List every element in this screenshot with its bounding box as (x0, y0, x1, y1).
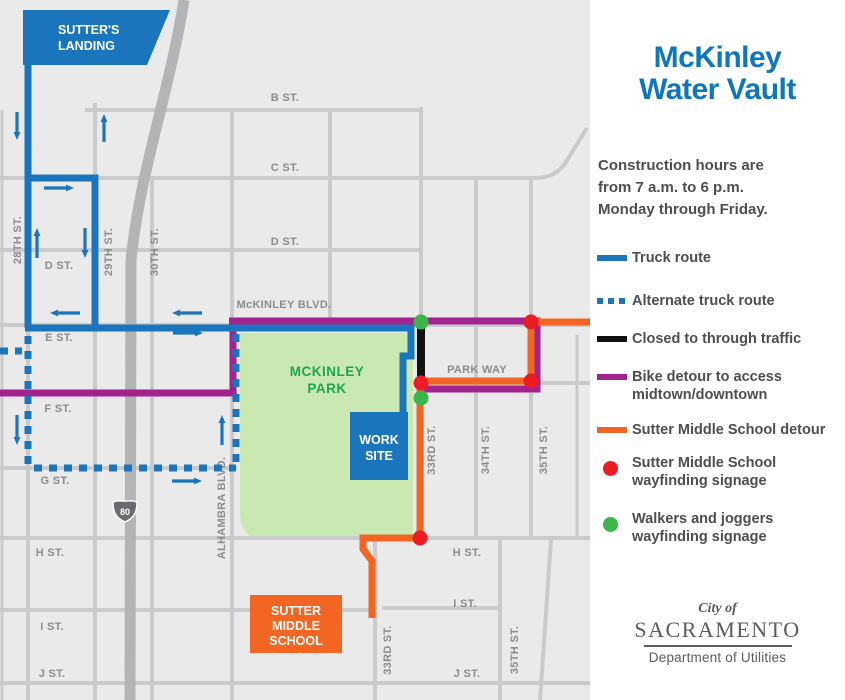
hours-line3: Monday through Friday. (598, 199, 768, 221)
legend-label: wayfinding signage (632, 528, 773, 546)
hours-line2: from 7 a.m. to 6 p.m. (598, 177, 768, 199)
school-detour-swatch (597, 427, 627, 433)
street-label: J ST. (454, 668, 481, 680)
info-panel: McKinley Water Vault Construction hours … (590, 0, 845, 700)
sutters-landing-callout: SUTTER'S LANDING (23, 10, 170, 65)
school-signage-dot (524, 374, 539, 389)
street-label: E ST. (45, 332, 73, 344)
legend-label: Sutter Middle School (632, 454, 776, 472)
logo-department: Department of Utilities (590, 650, 845, 665)
school-signage-dot (524, 315, 539, 330)
logo-divider (644, 645, 792, 647)
legend-label: Walkers and joggers (632, 510, 773, 528)
legend-label: Truck route (632, 249, 711, 267)
street-label: 35TH ST. (509, 626, 521, 674)
school-signage-dot (413, 531, 428, 546)
walkers-signage-dot (414, 391, 429, 406)
park-label-line2: PARK (307, 381, 346, 396)
street-label: I ST. (453, 598, 477, 610)
street-label: J ST. (39, 668, 66, 680)
street-label: 28TH ST. (12, 216, 24, 264)
street-label: 35TH ST. (538, 426, 550, 474)
closed-traffic-swatch (597, 336, 627, 342)
street-label: 33RD ST. (382, 625, 394, 674)
street-label: PARK WAY (447, 364, 507, 376)
street-label: C ST. (271, 162, 299, 174)
red-dot-icon (603, 461, 618, 476)
sacramento-logo: City of SACRAMENTO Department of Utiliti… (590, 601, 845, 665)
legend-label: Bike detour to access (632, 368, 782, 386)
shield-number: 80 (120, 507, 130, 517)
construction-map: 80 B ST. C ST. D ST. D ST. McKINLEY BLVD… (0, 0, 590, 700)
logo-sacramento: SACRAMENTO (590, 617, 845, 643)
construction-hours-note: Construction hours are from 7 a.m. to 6 … (598, 155, 768, 221)
work-site-callout: WORK SITE (350, 412, 408, 480)
page-title: McKinley Water Vault (590, 42, 845, 106)
legend-label: Alternate truck route (632, 292, 775, 310)
street-label: F ST. (44, 403, 71, 415)
alternate-truck-route-swatch (597, 298, 627, 304)
park-label-line1: MCKINLEY (290, 364, 365, 379)
sutters-landing-line2: LANDING (58, 39, 115, 53)
street-label: H ST. (453, 547, 481, 559)
street-label: ALHAMBRA BLVD. (216, 457, 228, 560)
street-label: McKINLEY BLVD. (237, 299, 332, 311)
school-signage-dot (414, 376, 429, 391)
sutter-middle-school-callout: SUTTER MIDDLE SCHOOL (250, 595, 342, 653)
flyer: 80 B ST. C ST. D ST. D ST. McKINLEY BLVD… (0, 0, 845, 700)
legend-label: midtown/downtown (632, 386, 782, 404)
street-label: D ST. (271, 236, 299, 248)
street-label: 33RD ST. (426, 425, 438, 474)
school-line2: MIDDLE (272, 619, 320, 633)
street-label: 29TH ST. (103, 228, 115, 276)
green-dot-icon (603, 517, 618, 532)
street-label: 34TH ST. (480, 426, 492, 474)
street-label: D ST. (45, 260, 73, 272)
street-label: B ST. (271, 92, 299, 104)
legend-label: wayfinding signage (632, 472, 776, 490)
title-line2: Water Vault (590, 74, 845, 106)
bike-detour-swatch (597, 374, 627, 380)
title-line1: McKinley (590, 42, 845, 74)
street-label: H ST. (36, 547, 64, 559)
street-label: 30TH ST. (149, 228, 161, 276)
legend-label: Sutter Middle School detour (632, 421, 825, 439)
work-site-line1: WORK (359, 433, 399, 447)
school-line3: SCHOOL (269, 634, 323, 648)
hours-line1: Construction hours are (598, 155, 768, 177)
logo-city-of: City of (590, 601, 845, 617)
work-site-line2: SITE (365, 449, 393, 463)
school-line1: SUTTER (271, 604, 321, 618)
walkers-signage-dot (414, 315, 429, 330)
street-label: G ST. (40, 475, 69, 487)
truck-route-swatch (597, 255, 627, 261)
legend-label: Closed to through traffic (632, 330, 801, 348)
sutters-landing-line1: SUTTER'S (58, 23, 119, 37)
street-label: I ST. (40, 621, 64, 633)
